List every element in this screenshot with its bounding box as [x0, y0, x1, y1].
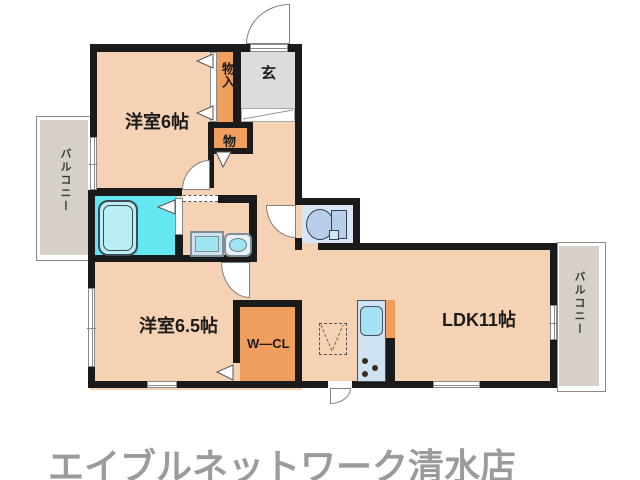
- ldk-door-gap: [328, 381, 352, 388]
- washroom-accordion-door: [183, 195, 218, 202]
- washbasin: [224, 233, 252, 257]
- wall-segment: [90, 44, 97, 137]
- bathroom-door-strip: [175, 198, 183, 235]
- washing-machine-drum: [195, 236, 219, 252]
- wall-segment: [295, 198, 360, 205]
- wall-segment: [175, 235, 183, 262]
- wall-segment: [233, 300, 302, 307]
- entrance-step: [241, 108, 295, 122]
- ldk-label: LDK11帖: [442, 306, 516, 332]
- floorplan: 洋室6帖 洋室6.5帖 LDK11帖 玄 物入 物 W―CL バルコニー バルコ…: [0, 0, 640, 480]
- closet-tall-label: 物入: [218, 62, 237, 88]
- ldk-door-arc: [330, 388, 351, 404]
- balcony-right-label: バルコニー: [571, 271, 587, 336]
- bedroom2-label: 洋室6.5帖: [139, 312, 218, 338]
- wall-segment: [386, 338, 395, 382]
- balcony-left-label: バルコニー: [57, 148, 73, 213]
- kitchen-end-panel: [386, 300, 395, 338]
- wall-segment: [88, 381, 147, 388]
- wall-segment: [90, 44, 250, 52]
- refrigerator-space: [319, 323, 347, 355]
- entrance-door-arc: [246, 4, 290, 44]
- wall-segment: [480, 381, 557, 388]
- wall-segment: [550, 250, 557, 305]
- window: [433, 381, 480, 388]
- window-balcony-door: [550, 305, 557, 340]
- wall-segment: [88, 367, 95, 388]
- toilet-control: [329, 230, 339, 240]
- washbasin-bowl: [229, 238, 247, 252]
- closet-door-strip: [210, 52, 217, 122]
- bedroom1-label: 洋室6帖: [125, 108, 189, 134]
- wall-segment: [288, 44, 302, 52]
- wall-segment: [318, 243, 557, 250]
- window: [90, 137, 97, 190]
- stove-burner: [362, 371, 368, 377]
- walkin-closet-label: W―CL: [247, 336, 290, 351]
- bathtub-inner: [103, 205, 133, 251]
- wall-segment: [90, 188, 182, 196]
- kitchen-sink: [360, 306, 383, 336]
- wall-segment: [233, 307, 240, 363]
- wall-segment: [247, 122, 253, 154]
- wall-segment: [88, 262, 95, 288]
- wall-segment: [352, 381, 433, 388]
- wall-segment: [295, 243, 302, 250]
- entrance-doorway: [250, 44, 288, 52]
- window: [147, 381, 177, 388]
- bathtub: [98, 200, 138, 256]
- window: [88, 288, 95, 367]
- washing-machine: [190, 231, 224, 257]
- closet-small-label: 物: [223, 131, 236, 150]
- floor-ldk-block: [296, 243, 557, 388]
- wall-segment: [177, 381, 302, 388]
- brand-text: エイブルネットワーク清水店: [48, 438, 516, 480]
- wall-segment: [88, 190, 95, 262]
- wall-segment: [295, 300, 302, 388]
- entrance-label: 玄: [261, 62, 276, 83]
- stove-burner: [362, 358, 368, 364]
- stove-burner: [372, 365, 378, 371]
- wall-segment: [295, 52, 302, 198]
